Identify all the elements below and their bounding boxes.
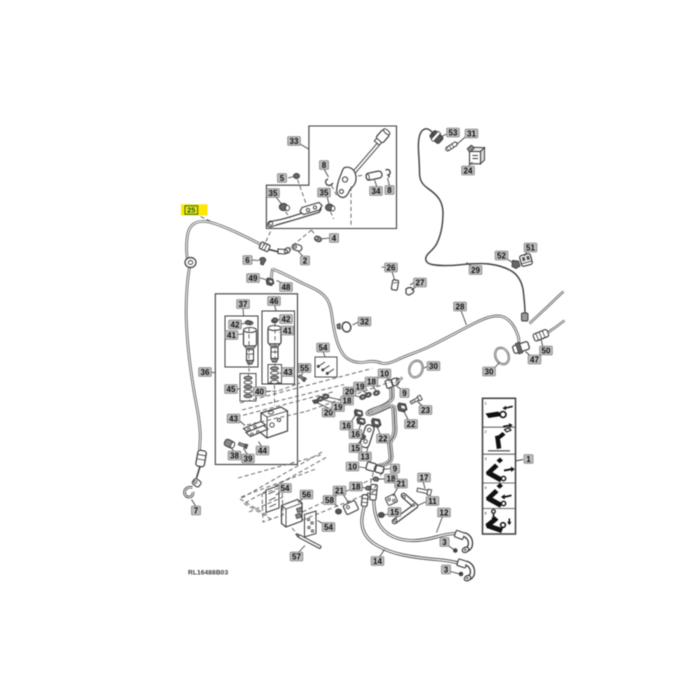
svg-text:30: 30 [429, 362, 438, 371]
svg-text:50: 50 [542, 346, 551, 355]
svg-text:37: 37 [239, 300, 248, 309]
svg-text:36: 36 [201, 368, 210, 377]
svg-text:57: 57 [292, 552, 301, 561]
svg-text:30: 30 [485, 367, 494, 376]
svg-text:10: 10 [380, 369, 389, 378]
svg-text:42: 42 [231, 320, 240, 329]
svg-text:26: 26 [387, 263, 396, 272]
svg-text:10: 10 [348, 462, 357, 471]
svg-text:41: 41 [227, 331, 236, 340]
svg-text:4: 4 [332, 234, 337, 243]
svg-text:1: 1 [526, 455, 531, 464]
svg-text:49: 49 [249, 274, 258, 283]
svg-text:8: 8 [322, 161, 327, 170]
svg-text:29: 29 [471, 266, 480, 275]
svg-text:43: 43 [229, 414, 238, 423]
svg-text:21: 21 [397, 479, 406, 488]
svg-text:18: 18 [343, 396, 352, 405]
svg-text:40: 40 [255, 387, 264, 396]
svg-text:33: 33 [290, 137, 299, 146]
svg-text:7: 7 [194, 506, 199, 515]
svg-text:56: 56 [302, 490, 311, 499]
svg-text:16: 16 [351, 430, 360, 439]
svg-text:32: 32 [360, 317, 369, 326]
svg-text:39: 39 [244, 454, 253, 463]
svg-text:19: 19 [356, 382, 365, 391]
svg-text:2: 2 [303, 256, 308, 265]
svg-text:22: 22 [407, 420, 416, 429]
svg-text:34: 34 [372, 187, 381, 196]
svg-text:54: 54 [319, 343, 328, 352]
svg-text:14: 14 [373, 557, 382, 566]
svg-text:24: 24 [464, 166, 473, 175]
svg-text:55: 55 [300, 364, 309, 373]
svg-text:6: 6 [245, 256, 250, 265]
svg-text:9: 9 [402, 389, 407, 398]
svg-text:45: 45 [227, 385, 236, 394]
svg-text:27: 27 [416, 278, 425, 287]
svg-text:18: 18 [367, 377, 376, 386]
svg-text:51: 51 [526, 243, 535, 252]
svg-text:25: 25 [187, 206, 195, 215]
svg-text:44: 44 [258, 446, 267, 455]
svg-text:42: 42 [282, 315, 291, 324]
svg-text:54: 54 [281, 484, 290, 493]
svg-text:22: 22 [379, 434, 388, 443]
svg-text:48: 48 [282, 283, 291, 292]
svg-text:11: 11 [428, 497, 437, 506]
svg-text:54: 54 [324, 523, 333, 532]
svg-text:18: 18 [352, 482, 361, 491]
svg-text:28: 28 [456, 302, 465, 311]
svg-text:15: 15 [390, 508, 399, 517]
svg-text:41: 41 [283, 326, 292, 335]
svg-text:17: 17 [420, 473, 429, 482]
svg-text:8: 8 [387, 186, 392, 195]
svg-text:38: 38 [230, 451, 239, 460]
svg-text:9: 9 [393, 464, 398, 473]
svg-text:3: 3 [444, 565, 449, 574]
svg-text:43: 43 [284, 368, 293, 377]
svg-text:35: 35 [269, 189, 278, 198]
svg-text:23: 23 [421, 406, 430, 415]
svg-text:5: 5 [280, 174, 285, 183]
svg-text:15: 15 [351, 444, 360, 453]
svg-text:47: 47 [530, 355, 539, 364]
svg-text:RL16488B03: RL16488B03 [188, 570, 228, 577]
svg-text:53: 53 [449, 128, 458, 137]
svg-text:35: 35 [320, 188, 329, 197]
svg-text:46: 46 [270, 297, 279, 306]
svg-text:31: 31 [467, 129, 476, 138]
svg-text:58: 58 [325, 496, 334, 505]
svg-text:52: 52 [497, 251, 506, 260]
svg-text:12: 12 [440, 508, 449, 517]
svg-text:13: 13 [361, 452, 370, 461]
svg-text:21: 21 [335, 486, 344, 495]
svg-text:20: 20 [345, 387, 354, 396]
svg-text:3: 3 [442, 538, 447, 547]
